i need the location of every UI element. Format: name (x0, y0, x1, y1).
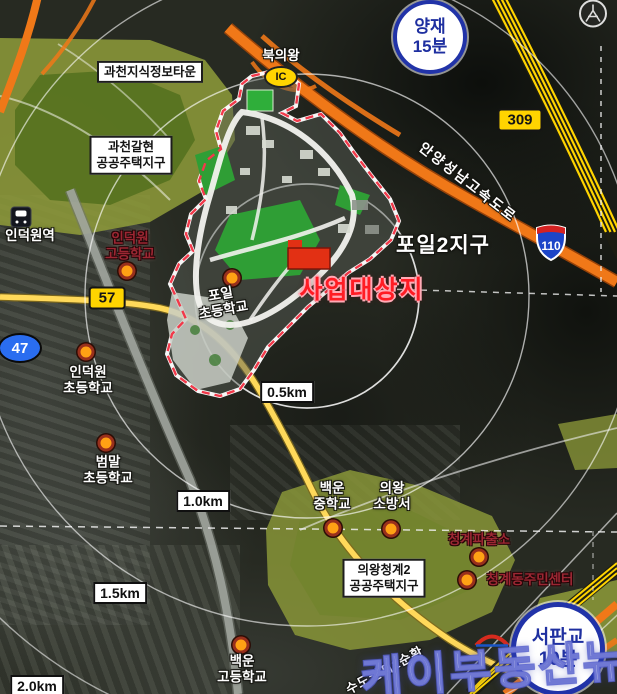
area-label: 과천지식정보타운 (104, 65, 196, 79)
poi-indeokwon-elem: 인덕원 초등학교 (63, 364, 113, 395)
poi-indeokwon-high: 인덕원 고등학교 (105, 230, 155, 261)
poi-uiwang-fire: 의왕 소방서 (373, 480, 410, 511)
train-light (24, 221, 27, 224)
poi-line1: 인덕원 (63, 364, 113, 380)
poi-line2: 중학교 (313, 496, 350, 512)
poi-baegun-mid: 백운 중학교 (313, 480, 350, 511)
location-map: 과천지식정보타운 과천갈현 공공주택지구 의왕청계2 공공주택지구 북의왕 IC… (0, 0, 617, 694)
yangjae-time-badge: 양재 15분 (393, 0, 467, 74)
train-window (16, 211, 27, 217)
route-47-badge: 47 (0, 333, 42, 363)
ring-label-1-5km: 1.5km (93, 582, 147, 604)
poi-marker-baegun-high (233, 637, 250, 654)
area-box-uiwang-cheonggye2: 의왕청계2 공공주택지구 (342, 559, 425, 598)
ring-label-0-5km: 0.5km (260, 381, 314, 403)
poi-marker-indeokwon-elem (78, 344, 95, 361)
project-site-label: 사업대상지 (299, 270, 424, 306)
poi-marker-baegun-mid (325, 520, 342, 537)
ring-label-2-0km: 2.0km (10, 675, 64, 694)
station-label-indeokwon: 인덕원역 (5, 228, 55, 244)
poi-line1: 범말 (83, 454, 133, 470)
observatory-icon (578, 0, 608, 34)
poi-beommal-elem: 범말 초등학교 (83, 454, 133, 485)
poi-line2: 고등학교 (217, 669, 267, 685)
train-light (16, 221, 19, 224)
area-label-line2: 공공주택지구 (349, 578, 418, 594)
poi-marker-cheonggye-center (459, 572, 476, 589)
poi-line2: 초등학교 (63, 380, 113, 396)
route-110-shield: 110 (534, 222, 568, 262)
area-label-line1: 과천갈현 (96, 139, 165, 155)
ic-name-label: 북의왕 (262, 48, 299, 64)
poi-line2: 소방서 (373, 496, 410, 512)
site-building-red (288, 248, 330, 269)
poi-line2: 초등학교 (83, 470, 133, 486)
poi-cheonggye-police: 청계파출소 (448, 532, 510, 548)
subway-station-icon (11, 207, 32, 228)
svg-text:110: 110 (541, 239, 561, 253)
poi-marker-cheonggye-police (471, 549, 488, 566)
poi-line1: 의왕 (373, 480, 410, 496)
poi-line2: 고등학교 (105, 246, 155, 262)
area-label-line2: 공공주택지구 (96, 155, 165, 171)
badge-minutes: 15분 (413, 37, 448, 57)
poil2-district-label: 포일2지구 (396, 234, 490, 258)
area-box-gwacheon-galhyeon: 과천갈현 공공주택지구 (89, 136, 172, 175)
ring-label-1-0km: 1.0km (176, 490, 230, 512)
poi-baegun-high: 백운 고등학교 (217, 653, 267, 684)
area-label-line1: 의왕청계2 (349, 562, 418, 578)
poi-marker-uiwang-fire (383, 521, 400, 538)
area-box-gwacheon-knowledge-town: 과천지식정보타운 (97, 61, 203, 83)
badge-destination: 양재 (414, 17, 445, 37)
poi-marker-indeokwon-high (119, 263, 136, 280)
poi-marker-beommal-elem (98, 435, 115, 452)
poi-cheonggye-center: 청계동주민센터 (487, 572, 574, 588)
ic-badge: IC (264, 66, 298, 88)
poi-line1: 백운 (217, 653, 267, 669)
route-309-badge: 309 (497, 109, 542, 132)
route-57-badge: 57 (89, 287, 126, 310)
poi-line1: 인덕원 (105, 230, 155, 246)
poi-line1: 백운 (313, 480, 350, 496)
route-shield-icon: 110 (534, 222, 568, 262)
